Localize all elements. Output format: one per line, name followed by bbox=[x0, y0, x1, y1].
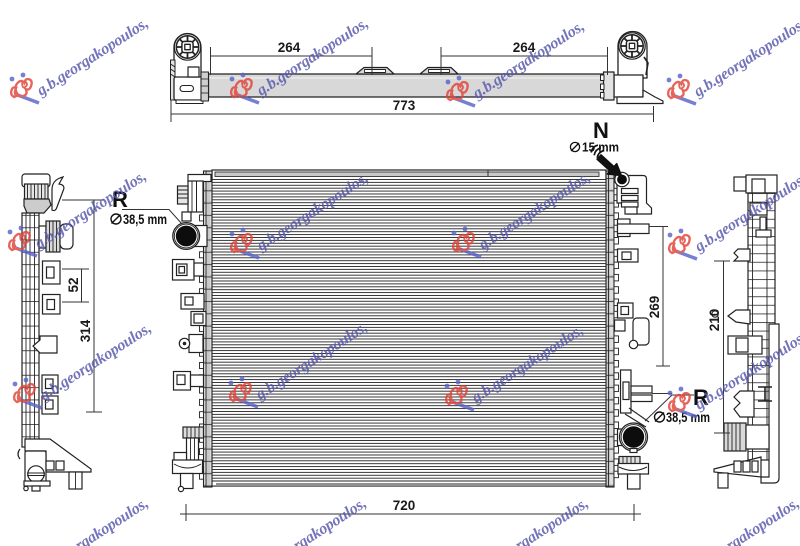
svg-text:269: 269 bbox=[647, 296, 662, 319]
svg-text:720: 720 bbox=[393, 498, 416, 513]
svg-text:210: 210 bbox=[707, 309, 722, 332]
svg-text:52: 52 bbox=[66, 277, 81, 292]
svg-text:314: 314 bbox=[78, 319, 93, 342]
svg-text:38,5 mm: 38,5 mm bbox=[123, 211, 167, 227]
svg-text:773: 773 bbox=[393, 98, 416, 113]
svg-text:264: 264 bbox=[278, 40, 301, 55]
